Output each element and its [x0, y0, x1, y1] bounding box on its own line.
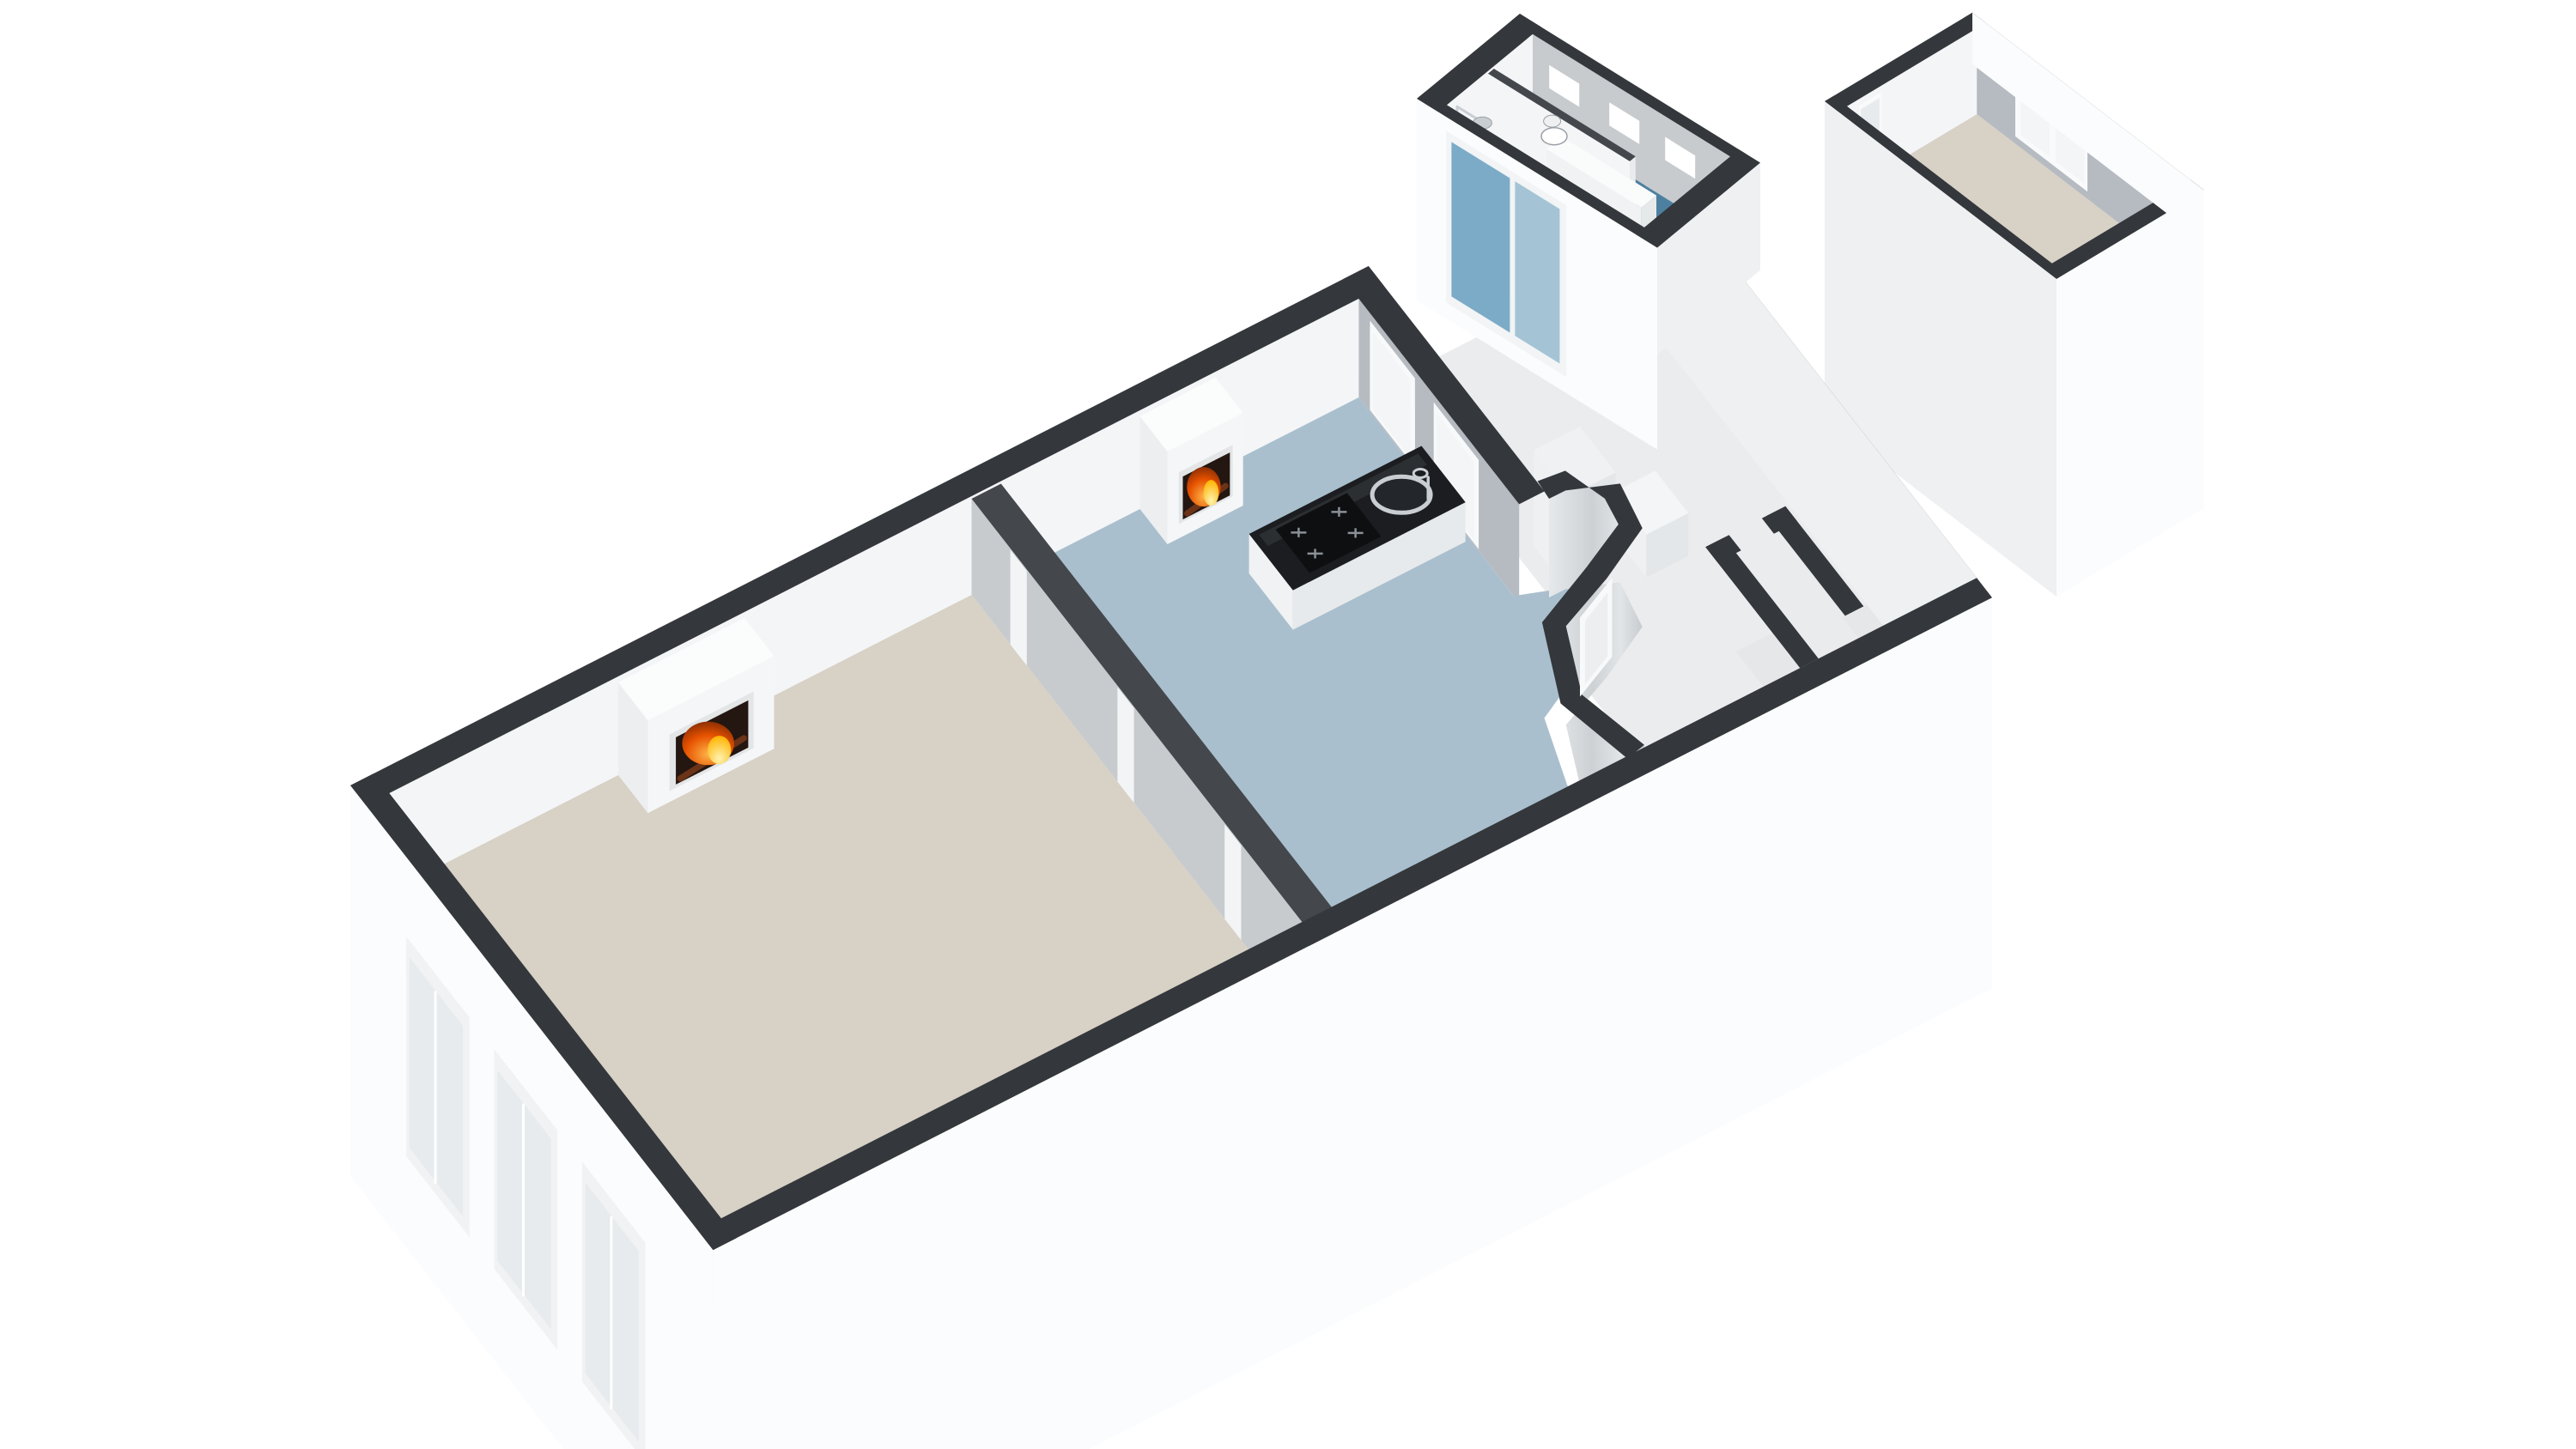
toilet-tank	[1544, 115, 1561, 127]
living-fire-flames-flame-core	[708, 736, 731, 764]
kitchen-fire-flames-flame-core	[1204, 480, 1219, 506]
bathroom-slider-glass-2	[1515, 181, 1559, 363]
sink-basin	[1372, 476, 1431, 512]
toilet-bowl	[1541, 128, 1567, 145]
floorplan-scene-svg	[0, 0, 2576, 1449]
floorplan-3d-render: 3D floor plan render - long apartment wi…	[0, 0, 2576, 1449]
